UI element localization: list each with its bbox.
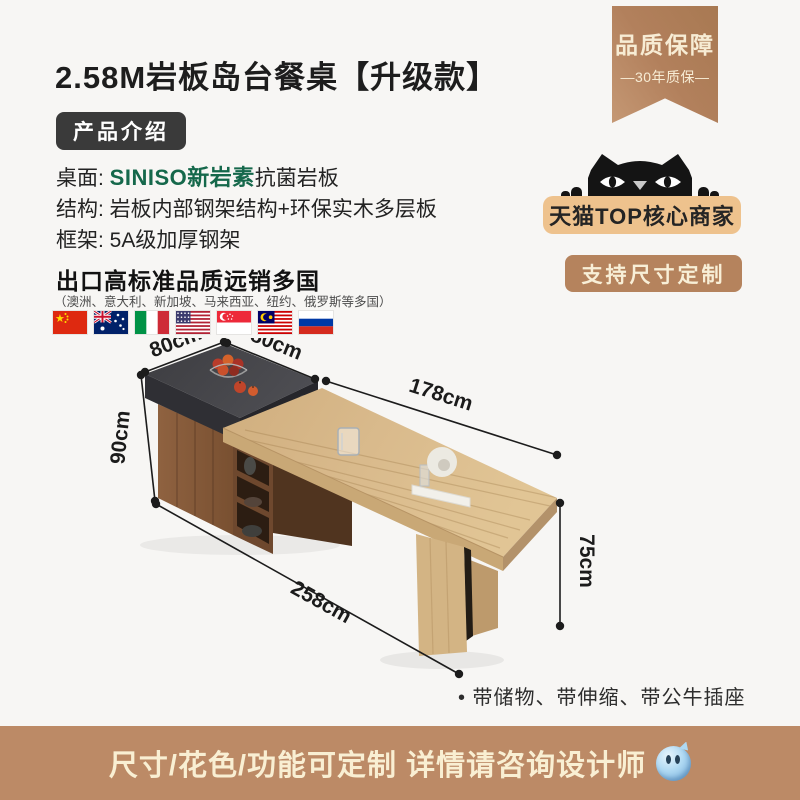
intro-badge: 产品介绍	[56, 112, 186, 150]
footer-text: 尺寸/花色/功能可定制 详情请咨询设计师	[109, 742, 646, 784]
brand-text: SINISO新岩素	[110, 165, 255, 190]
spec-label: 框架:	[56, 229, 110, 252]
features-note: • 带储物、带伸缩、带公牛插座	[458, 681, 746, 710]
export-countries: （澳洲、意大利、新加坡、马来西亚、纽约、俄罗斯等多国）	[54, 291, 392, 310]
spec-list: 桌面: SINISO新岩素抗菌岩板 结构: 岩板内部钢架结构+环保实木多层板 框…	[56, 162, 437, 256]
spec-value: 5A级加厚钢架	[110, 229, 241, 252]
spec-value: 岩板内部钢架结构+环保实木多层板	[110, 198, 437, 221]
tmall-top-merchant-badge: 天猫TOP核心商家	[543, 196, 741, 234]
flag-australia-icon	[94, 311, 128, 334]
glass-cup	[338, 428, 359, 455]
spec-label: 桌面:	[56, 167, 110, 190]
dim-label-total-length: 258cm	[287, 576, 355, 628]
customize-size-button[interactable]: 支持尺寸定制	[565, 255, 742, 292]
flag-russia-icon	[299, 311, 333, 334]
water-drop-emoji-icon	[656, 746, 691, 781]
svg-text:★: ★	[55, 313, 65, 325]
flag-singapore-icon	[217, 311, 251, 334]
ribbon-subtitle: —30年质保—	[612, 67, 718, 87]
flag-china-icon: ★	[53, 311, 87, 334]
flag-usa-icon	[176, 311, 210, 334]
dim-label-island-height: 90cm	[106, 409, 134, 465]
ribbon-title: 品质保障	[612, 26, 718, 60]
flag-row: ★	[53, 311, 333, 334]
spec-row-structure: 结构: 岩板内部钢架结构+环保实木多层板	[56, 194, 437, 225]
flag-malaysia-icon	[258, 311, 292, 334]
spec-row-top: 桌面: SINISO新岩素抗菌岩板	[56, 162, 437, 194]
product-detail-page: 2.58M岩板岛台餐桌【升级款】 产品介绍 桌面: SINISO新岩素抗菌岩板 …	[0, 0, 800, 800]
dim-label-table-height: 75cm	[575, 534, 598, 588]
footer-banner: 尺寸/花色/功能可定制 详情请咨询设计师	[0, 726, 800, 800]
quality-ribbon: 品质保障 —30年质保—	[612, 6, 718, 123]
page-title: 2.58M岩板岛台餐桌【升级款】	[55, 52, 498, 97]
product-render: 80cm 80cm 178cm 90cm 258cm 75cm	[90, 338, 630, 693]
spec-value: 抗菌岩板	[255, 167, 339, 190]
flag-italy-icon	[135, 311, 169, 334]
spec-row-frame: 框架: 5A级加厚钢架	[56, 225, 437, 256]
spec-label: 结构:	[56, 198, 110, 221]
